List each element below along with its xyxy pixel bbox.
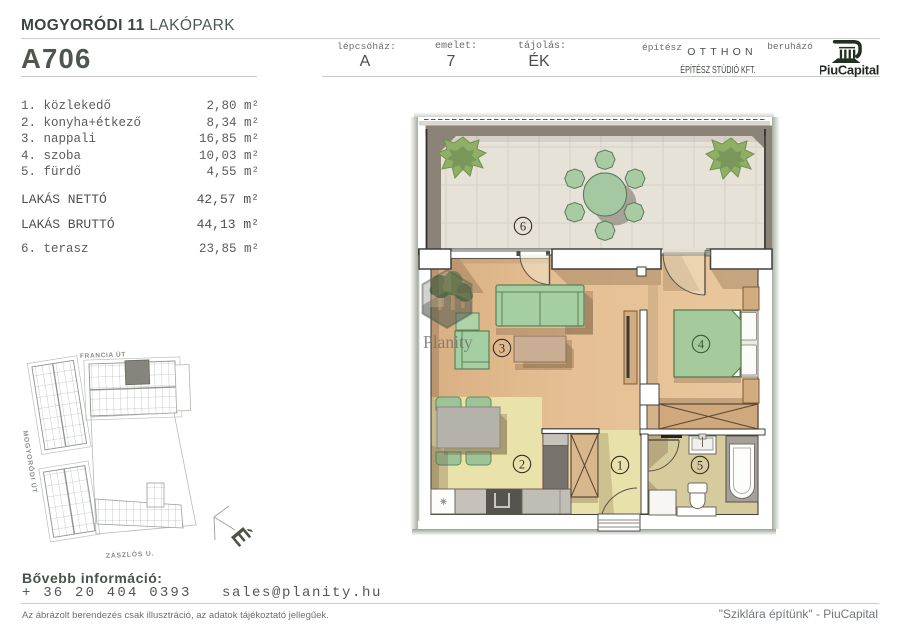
- svg-text:2: 2: [519, 458, 525, 472]
- svg-text:MOGYORÓDI ÚT: MOGYORÓDI ÚT: [21, 430, 40, 494]
- svg-text:É: É: [226, 522, 257, 551]
- svg-text:5: 5: [697, 459, 703, 473]
- svg-text:1: 1: [617, 459, 623, 473]
- svg-text:PiuCapital: PiuCapital: [820, 63, 879, 78]
- svg-text:FRANCIA ÚT: FRANCIA ÚT: [80, 349, 126, 360]
- svg-text:Planity: Planity: [423, 332, 473, 352]
- svg-text:4: 4: [698, 338, 705, 352]
- svg-text:3: 3: [499, 342, 505, 356]
- svg-text:6: 6: [520, 220, 526, 234]
- svg-text:ZÁSZLÓS U.: ZÁSZLÓS U.: [106, 548, 155, 560]
